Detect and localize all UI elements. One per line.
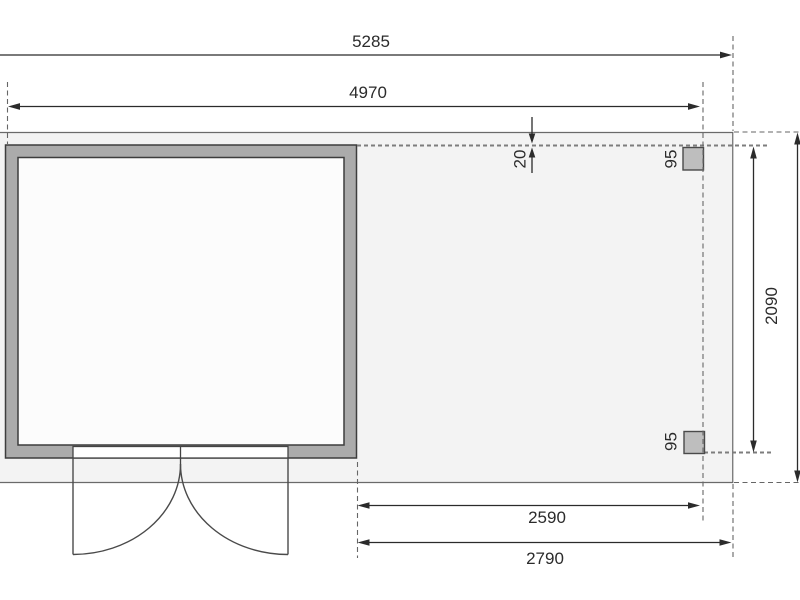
arrowhead-left-icon bbox=[358, 539, 370, 546]
cabin-interior bbox=[18, 158, 344, 446]
dim-house-width: 4970 bbox=[8, 83, 700, 110]
dim-label-annex-depth: 2090 bbox=[762, 287, 781, 325]
arrowhead-left-icon bbox=[358, 502, 370, 509]
dim-label-post-top: 95 bbox=[662, 150, 681, 169]
floor-plan: 5285 4970 20 95 95 2090 2590 bbox=[0, 0, 800, 600]
dim-label-house-width: 4970 bbox=[349, 83, 387, 102]
dim-annex-width-outer: 2790 bbox=[358, 539, 732, 568]
arrowhead-right-icon bbox=[720, 539, 732, 546]
post-bottom bbox=[684, 432, 705, 454]
arrowhead-right-icon bbox=[720, 52, 732, 59]
arrowhead-right-icon bbox=[688, 502, 700, 509]
post-top bbox=[683, 148, 704, 171]
dim-label-annex-width-outer: 2790 bbox=[526, 549, 564, 568]
arrowhead-down-icon bbox=[794, 471, 800, 483]
dim-label-post-bottom: 95 bbox=[662, 432, 681, 451]
dim-overall-width: 5285 bbox=[0, 32, 732, 58]
arrowhead-up-icon bbox=[794, 133, 800, 145]
dim-label-overall-width: 5285 bbox=[352, 32, 390, 51]
dim-annex-width-inner: 2590 bbox=[358, 502, 701, 527]
dim-post-span bbox=[750, 147, 757, 453]
floor-plan-canvas: 5285 4970 20 95 95 2090 2590 bbox=[0, 0, 800, 600]
arrowhead-up-icon bbox=[750, 147, 757, 159]
arrowhead-right-icon bbox=[688, 103, 700, 110]
arrowhead-left-icon bbox=[8, 103, 20, 110]
arrowhead-down-icon bbox=[750, 441, 757, 453]
dim-label-roof-offset: 20 bbox=[511, 150, 530, 169]
dim-label-annex-width-inner: 2590 bbox=[528, 508, 566, 527]
dim-annex-depth: 2090 bbox=[762, 133, 800, 483]
